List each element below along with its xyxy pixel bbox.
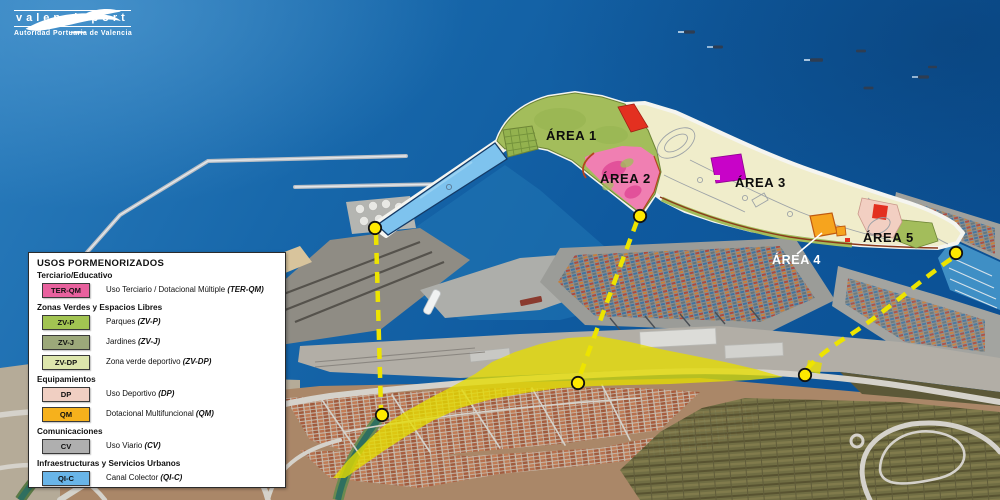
legend-swatch-dp: DP: [42, 387, 90, 402]
valenciaport-logo: valenciaport Autoridad Portuaria de Vale…: [14, 8, 132, 37]
legend-description: Jardines (ZV-J): [106, 338, 160, 346]
legend-section-header: Terciario/Educativo: [37, 271, 278, 280]
legend-rows: Terciario/EducativoTER-QMUso Terciario /…: [36, 271, 278, 486]
area-4-label: ÁREA 4: [772, 253, 821, 267]
legend-box: USOS PORMENORIZADOS Terciario/EducativoT…: [28, 252, 286, 488]
legend-description: Zona verde deportivo (ZV-DP): [106, 358, 211, 366]
legend-swatch-ter-qm: TER-QM: [42, 283, 90, 298]
bird-logo-icon: [14, 8, 136, 34]
legend-swatch-qi-c: QI-C: [42, 471, 90, 486]
park-grid: [503, 126, 538, 157]
legend-description: Uso Terciario / Dotacional Múltiple (TER…: [106, 286, 264, 294]
legend-item-qm: QMDotacional Multifuncional (QM): [42, 407, 278, 422]
legend-swatch-zv-dp: ZV-DP: [42, 355, 90, 370]
legend-swatch-qm: QM: [42, 407, 90, 422]
legend-section-header: Infraestructuras y Servicios Urbanos: [37, 459, 278, 468]
legend-description: Parques (ZV-P): [106, 318, 161, 326]
legend-item-qi-c: QI-CCanal Colector (QI-C): [42, 471, 278, 486]
legend-swatch-cv: CV: [42, 439, 90, 454]
area-1-label: ÁREA 1: [546, 128, 597, 143]
legend-section-header: Zonas Verdes y Espacios Libres: [37, 303, 278, 312]
legend-section-header: Comunicaciones: [37, 427, 278, 436]
legend-item-dp: DPUso Deportivo (DP): [42, 387, 278, 402]
area-3-label: ÁREA 3: [735, 175, 786, 190]
ships-at-sea: [678, 30, 937, 89]
legend-item-cv: CVUso Viario (CV): [42, 439, 278, 454]
legend-item-zv-j: ZV-JJardines (ZV-J): [42, 335, 278, 350]
legend-description: Uso Viario (CV): [106, 442, 161, 450]
legend-title: USOS PORMENORIZADOS: [37, 258, 278, 269]
legend-description: Uso Deportivo (DP): [106, 390, 174, 398]
legend-section-header: Equipamientos: [37, 375, 278, 384]
legend-swatch-zv-p: ZV-P: [42, 315, 90, 330]
area-5-label: ÁREA 5: [863, 230, 914, 245]
legend-item-zv-p: ZV-PParques (ZV-P): [42, 315, 278, 330]
legend-description: Canal Colector (QI-C): [106, 474, 182, 482]
legend-description: Dotacional Multifuncional (QM): [106, 410, 214, 418]
legend-item-zv-dp: ZV-DPZona verde deportivo (ZV-DP): [42, 355, 278, 370]
legend-item-ter-qm: TER-QMUso Terciario / Dotacional Múltipl…: [42, 283, 278, 298]
legend-swatch-zv-j: ZV-J: [42, 335, 90, 350]
area-2-label: ÁREA 2: [600, 171, 651, 186]
port-plan-map: valenciaport Autoridad Portuaria de Vale…: [0, 0, 1000, 500]
